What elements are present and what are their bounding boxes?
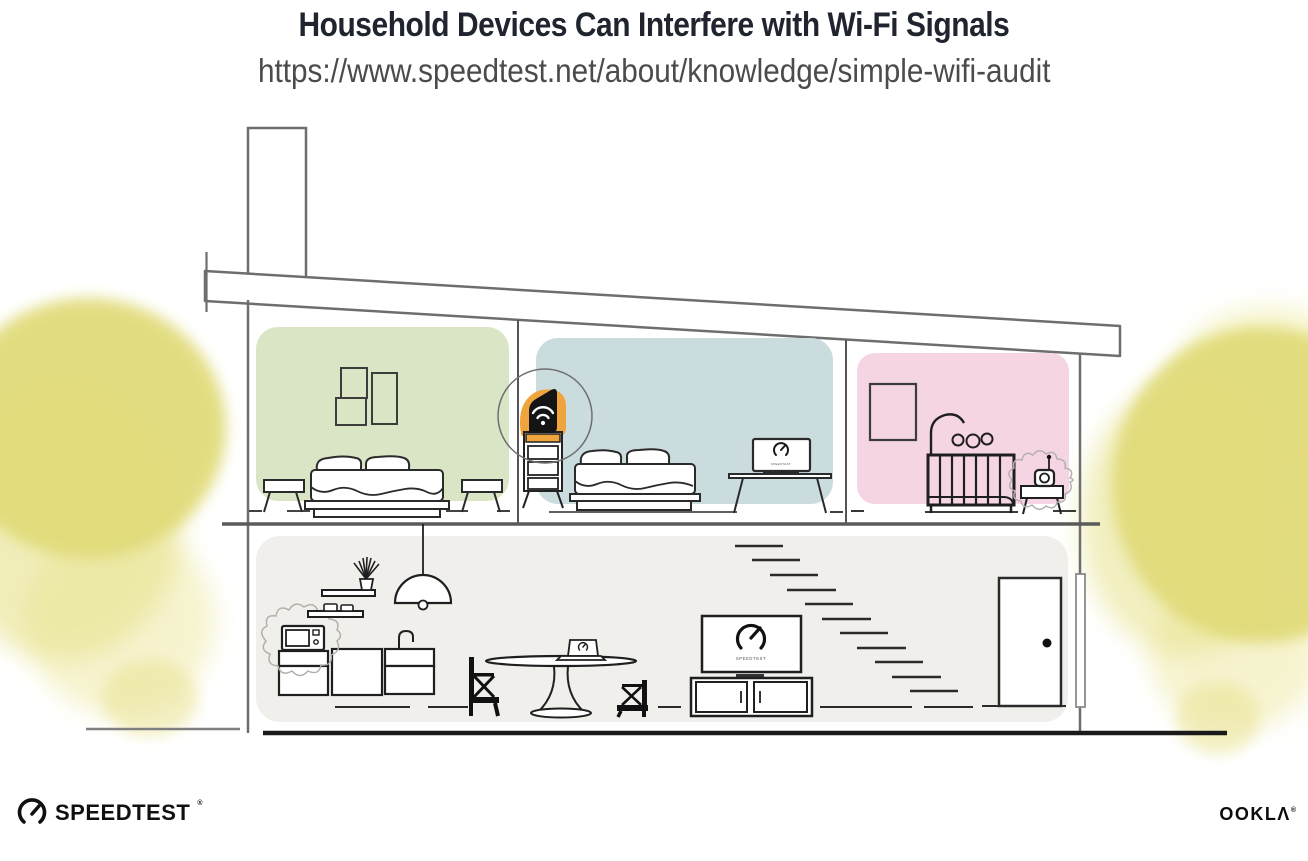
desk-laptop: SPEEDTEST [753,439,810,475]
infographic-page: Household Devices Can Interfere with Wi-… [0,0,1308,861]
ookla-logo: OOKLΛ® [1219,804,1296,825]
speedtest-gauge-icon [16,797,48,829]
foliage-left [0,298,226,736]
downspout [1076,574,1085,707]
tv: SPEEDTEST [702,616,801,678]
front-door [999,578,1061,706]
kitchen-cabinets [279,649,434,695]
foliage-right [1080,307,1308,754]
house-illustration: SPEEDTEST [0,0,1308,861]
chimney [248,128,306,278]
speedtest-reg-mark: ® [197,797,202,811]
speedtest-wordmark: SPEEDTEST [55,797,190,829]
floor-dashes-nursery [851,511,1076,512]
ookla-reg-mark: ® [1291,807,1296,814]
speedtest-logo: SPEEDTEST® [16,797,202,829]
ookla-wordmark: OOKLΛ [1219,804,1291,824]
microwave [282,626,324,650]
media-console [691,678,812,716]
tv-screen-label: SPEEDTEST [736,656,766,661]
door-knob [1043,639,1052,648]
desk-laptop-label: SPEEDTEST [771,462,791,466]
